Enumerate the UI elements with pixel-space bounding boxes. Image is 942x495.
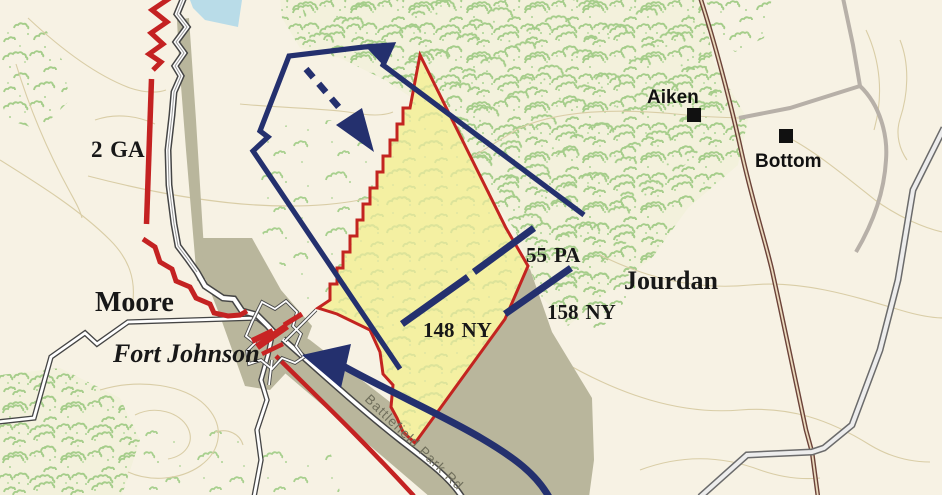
svg-text:Fort Johnson: Fort Johnson	[112, 339, 260, 368]
svg-text:Bottom: Bottom	[755, 151, 821, 172]
svg-text:55 PA: 55 PA	[526, 243, 581, 267]
svg-text:2 GA: 2 GA	[91, 137, 145, 162]
svg-text:Aiken: Aiken	[647, 87, 699, 108]
svg-text:Moore: Moore	[95, 287, 174, 318]
svg-text:148 NY: 148 NY	[423, 318, 492, 342]
svg-text:158 NY: 158 NY	[547, 300, 616, 324]
svg-text:Jourdan: Jourdan	[624, 266, 718, 295]
